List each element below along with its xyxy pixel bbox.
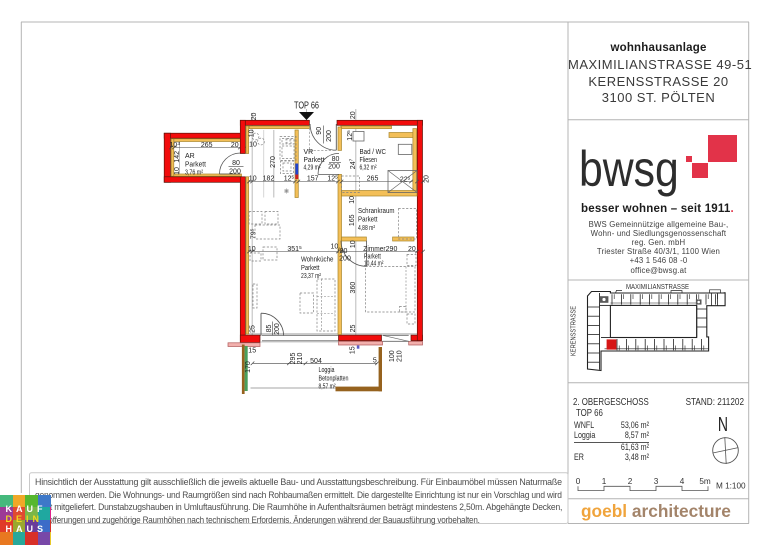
svg-text:3: 3 — [654, 477, 659, 486]
svg-text:M 1:100: M 1:100 — [716, 482, 746, 491]
svg-text:5m: 5m — [699, 477, 711, 486]
svg-text:4: 4 — [680, 477, 685, 486]
svg-text:1: 1 — [602, 477, 607, 486]
svg-text:0: 0 — [576, 477, 581, 486]
svg-text:2: 2 — [628, 477, 633, 486]
